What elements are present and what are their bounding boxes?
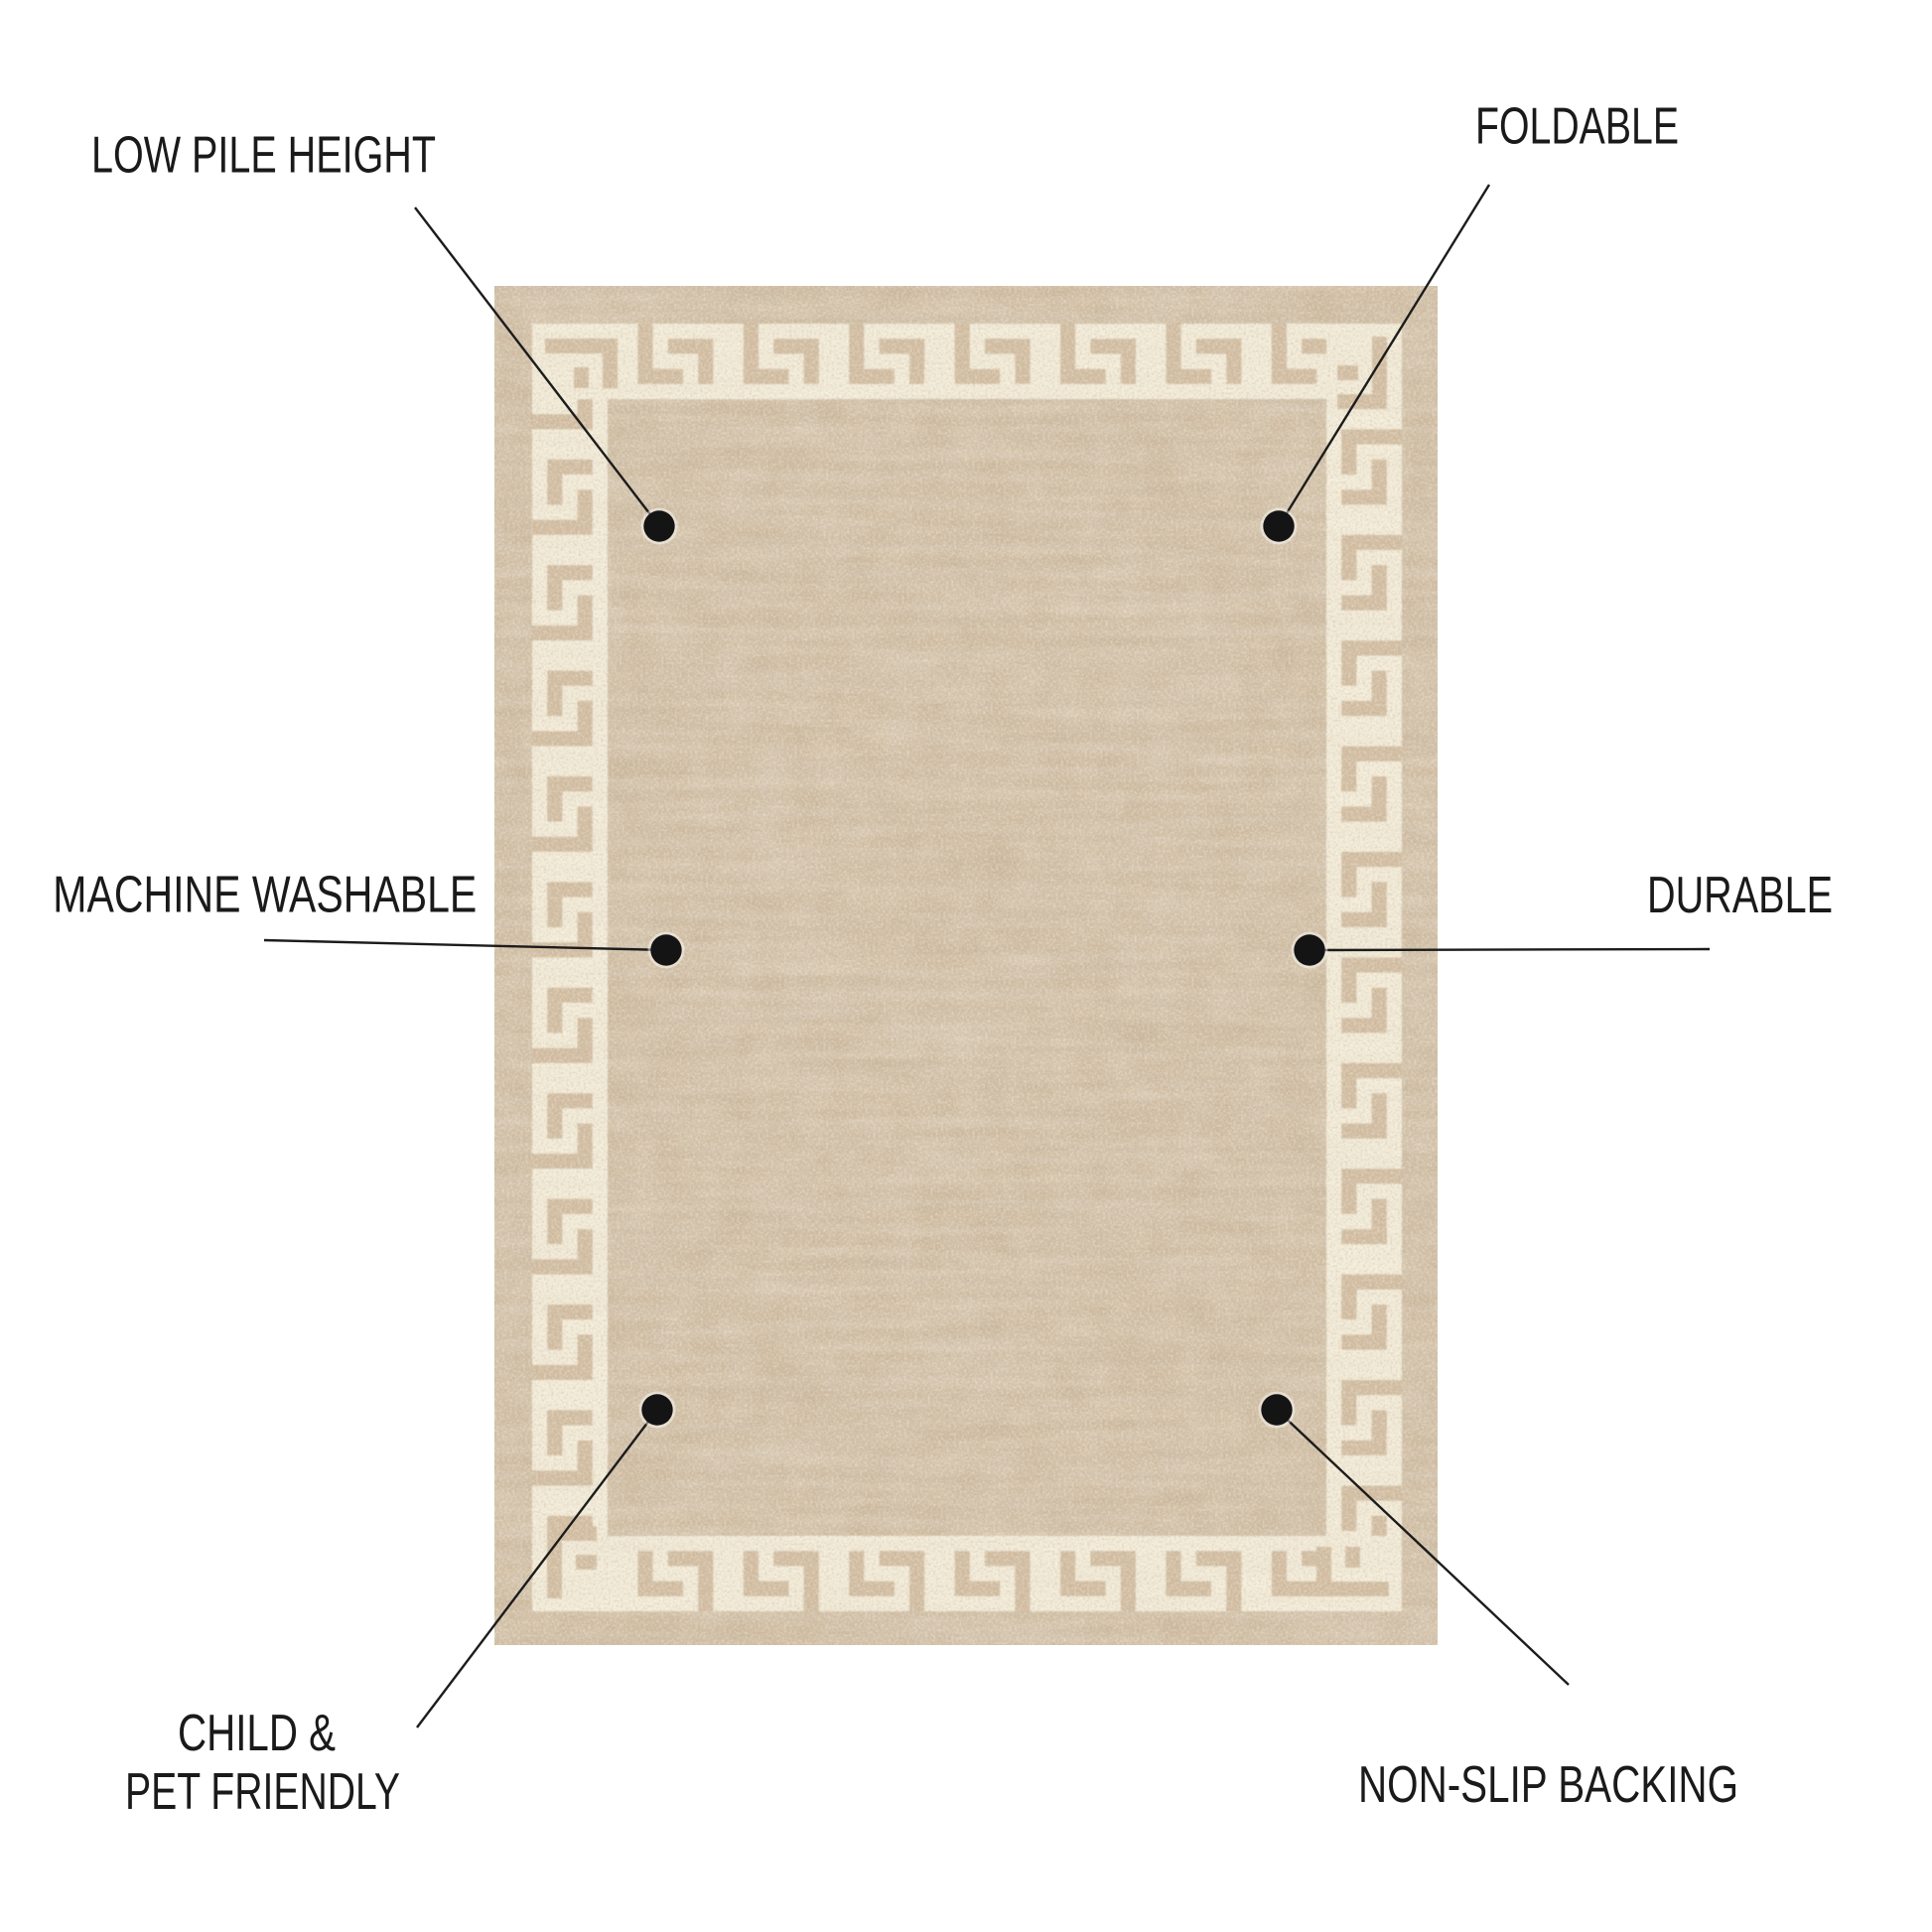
svg-text:FOLDABLE: FOLDABLE [1475, 98, 1679, 156]
svg-text:CHILD &: CHILD & [178, 1705, 336, 1762]
svg-text:LOW PILE HEIGHT: LOW PILE HEIGHT [91, 127, 436, 185]
svg-text:MACHINE WASHABLE: MACHINE WASHABLE [53, 867, 477, 924]
svg-text:NON-SLIP BACKING: NON-SLIP BACKING [1358, 1756, 1738, 1814]
svg-text:PET FRIENDLY: PET FRIENDLY [125, 1763, 400, 1821]
svg-text:DURABLE: DURABLE [1647, 867, 1833, 924]
